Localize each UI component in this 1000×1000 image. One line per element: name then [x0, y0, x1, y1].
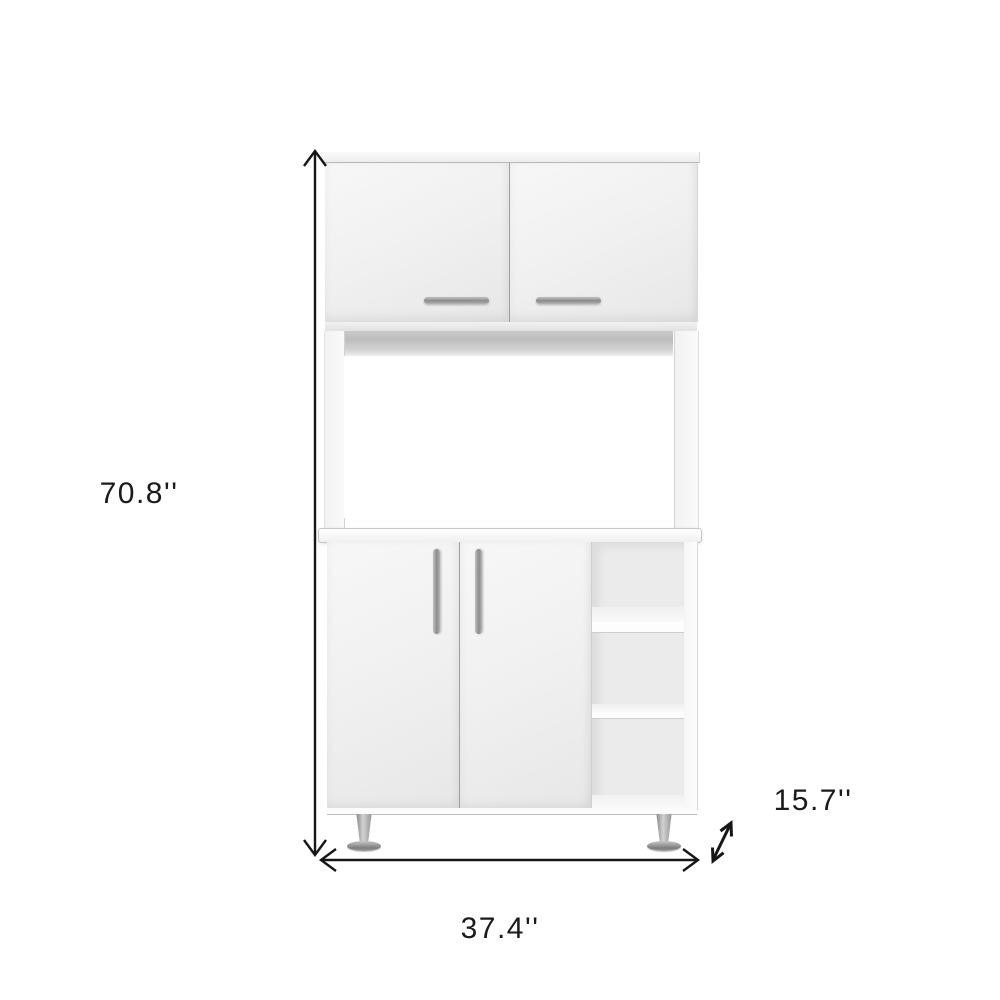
- left-side-panel: [324, 331, 345, 529]
- cabinet-base-strip: [327, 808, 697, 815]
- shelf-top-surface: [592, 704, 684, 712]
- cubby-shelf-board-1: [592, 607, 684, 633]
- width-dimension-label: 37.4'': [461, 912, 540, 946]
- cubby-shelf-board-2: [592, 704, 684, 719]
- upper-cabinet-bottom-rail: [325, 322, 697, 331]
- upper-cabinet-top-board: [322, 152, 700, 163]
- leg-base: [347, 841, 381, 851]
- height-dimension-label: 70.8'': [100, 477, 179, 511]
- product-dimension-image: 70.8'' 37.4'' 15.7'': [0, 0, 1000, 1000]
- leg-stem: [354, 814, 374, 844]
- right-side-panel: [674, 331, 699, 529]
- lower-right-door-handle: [475, 549, 482, 634]
- front-right-leg: [646, 814, 682, 852]
- upper-cabinet-underside-shadow: [343, 331, 673, 356]
- lower-left-door-handle: [433, 549, 440, 634]
- height-dimension-arrow: [304, 151, 326, 855]
- depth-dimension-label: 15.7'': [774, 784, 853, 818]
- open-microwave-compartment: [344, 356, 673, 518]
- width-dimension-arrow: [321, 849, 698, 871]
- depth-dimension-arrow: [713, 823, 732, 861]
- open-shelf-cubby: [592, 542, 684, 805]
- lower-left-door: [327, 542, 460, 810]
- upper-right-door-handle: [536, 297, 601, 304]
- front-left-leg: [346, 814, 382, 852]
- shelf-top-surface: [592, 607, 684, 622]
- leg-stem: [654, 814, 674, 844]
- leg-base: [647, 841, 681, 851]
- cubby-right-wall: [684, 542, 698, 810]
- upper-left-door-handle: [424, 297, 489, 304]
- counter-board: [318, 528, 702, 543]
